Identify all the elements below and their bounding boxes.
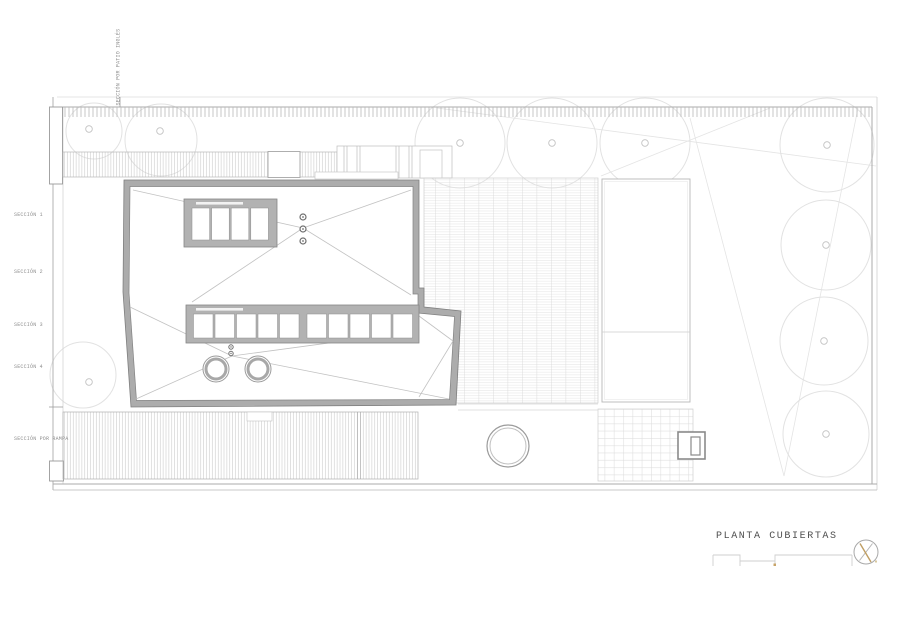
scale-bar [713, 555, 852, 566]
section-label-rampa: SECCIÓN POR RAMPA [14, 437, 68, 442]
tree-trunk [86, 126, 93, 133]
plan-title: PLANTA CUBIERTAS [716, 531, 838, 542]
tree-trunk [457, 140, 464, 147]
section-label-1: SECCIÓN 1 [14, 213, 43, 218]
lawn-panel [602, 179, 690, 402]
equipment-box [678, 432, 705, 459]
tree-trunk [86, 379, 93, 386]
tree-trunk [157, 128, 164, 135]
tree-trunk [823, 242, 830, 249]
path-strip [458, 404, 598, 410]
boundary-wall-segment [50, 107, 63, 184]
roof-surface [129, 187, 455, 401]
section-label-4: SECCIÓN 4 [14, 365, 43, 370]
tree-trunk [549, 140, 556, 147]
roof [123, 180, 461, 407]
section-label-patio-ingles: SECCIÓN POR PATIO INGLÉS [117, 46, 124, 106]
skylight-upper [184, 199, 277, 247]
section-label-3: SECCIÓN 3 [14, 323, 43, 328]
skylight-strip [186, 305, 419, 343]
tree-trunk [823, 431, 830, 438]
tree-canopy [50, 342, 116, 408]
fence-hatch [63, 107, 872, 117]
section-label-2: SECCIÓN 2 [14, 270, 43, 275]
tree-trunk [824, 142, 831, 149]
north-arrow-icon [854, 540, 878, 564]
tree-trunk [821, 338, 828, 345]
lower-terrace-hatch [63, 412, 418, 479]
patio-opening [268, 152, 300, 178]
boundary-wall-segment [50, 461, 64, 481]
floor-plan-sheet: SECCIÓN POR PATIO INGLÉS SECCIÓN 1 SECCI… [0, 0, 900, 635]
tree-trunk [642, 140, 649, 147]
pool-circle [487, 425, 529, 467]
